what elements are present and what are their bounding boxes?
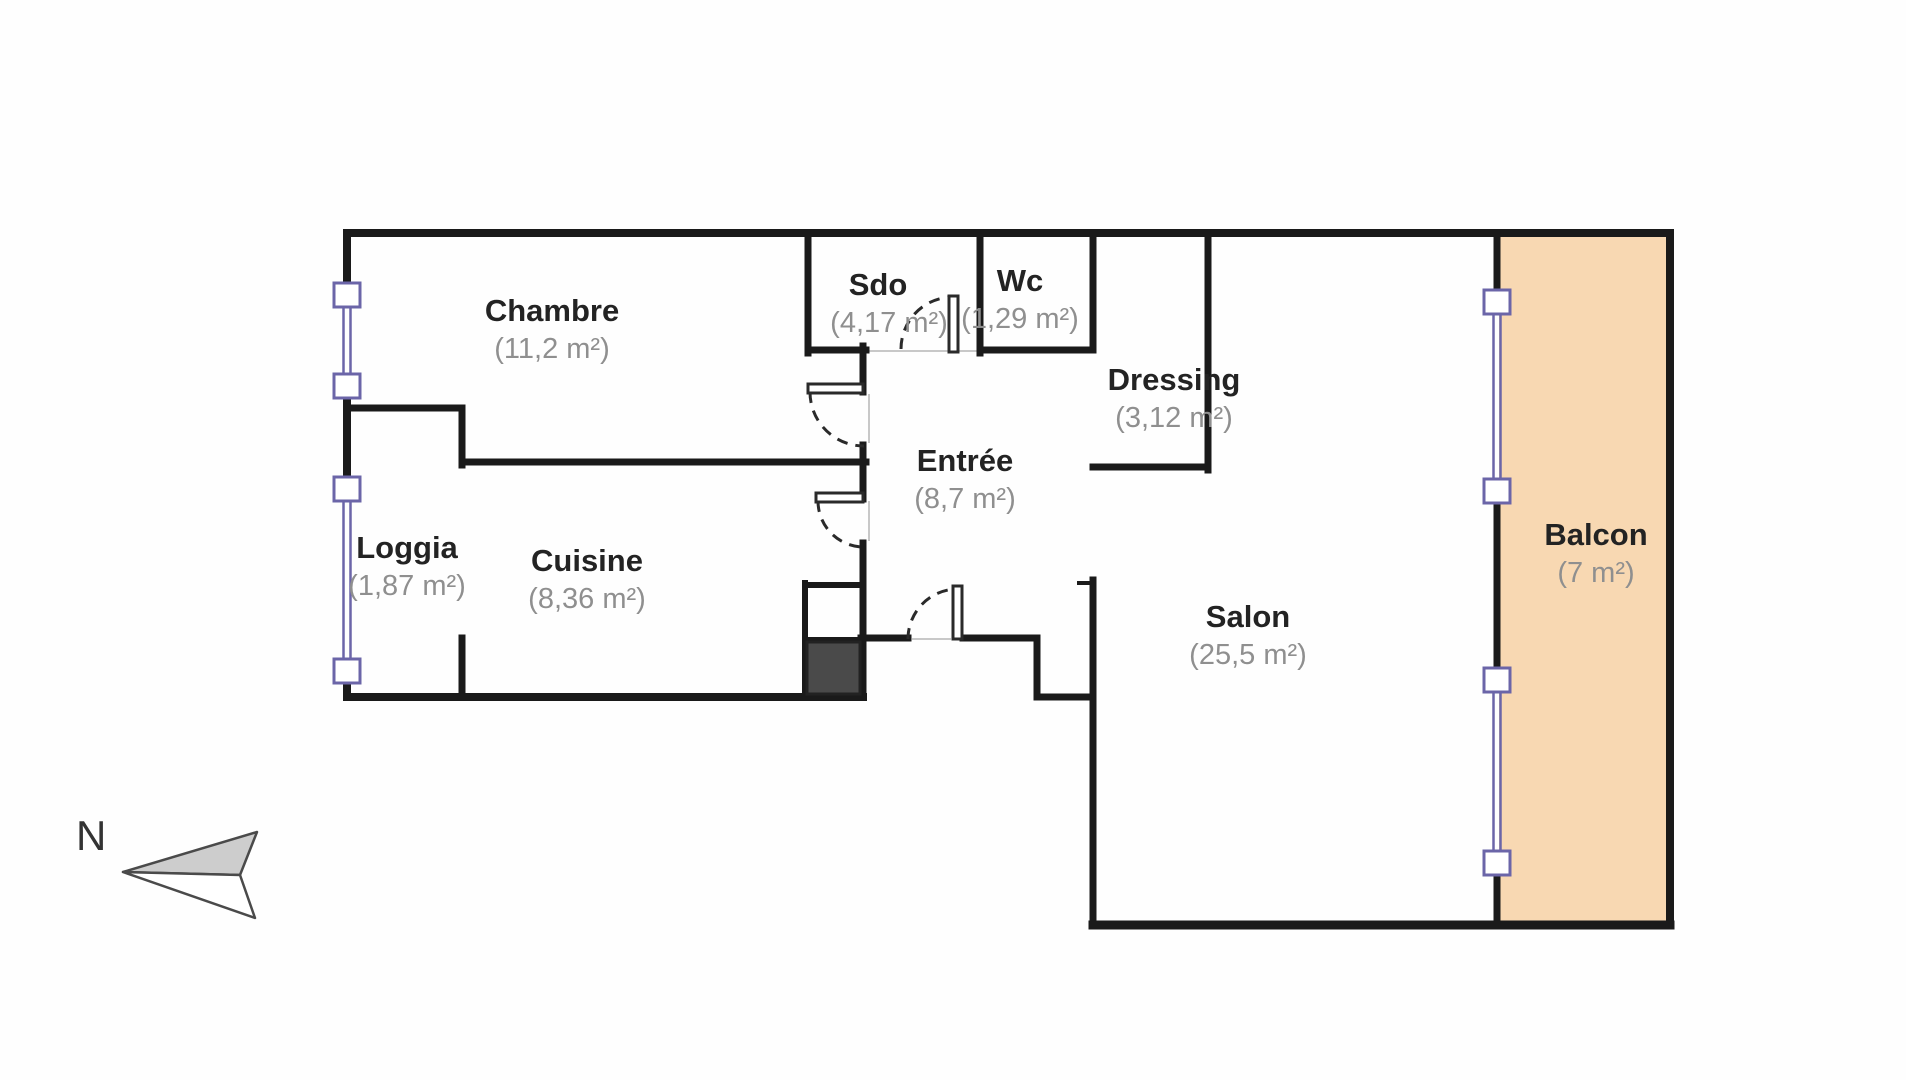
floor-plan-drawing [0,0,1906,1080]
floor-plan-page: N Chambre (11,2 m²) Sdo (4,17 m²) Wc (1,… [0,0,1906,1080]
duct-shaft [807,642,860,694]
door-icon-chambre [808,384,864,446]
north-arrow-icon [123,832,257,918]
door-icon-cuisine [816,493,864,547]
window-icon-loggia [334,477,360,683]
balcony-floor-fill [1499,237,1667,922]
compass-north-label: N [76,812,106,860]
door-icon-sdo [901,296,958,352]
window-icon-chambre [334,283,360,398]
door-icon-entrance [908,586,962,639]
walls [347,233,1670,925]
